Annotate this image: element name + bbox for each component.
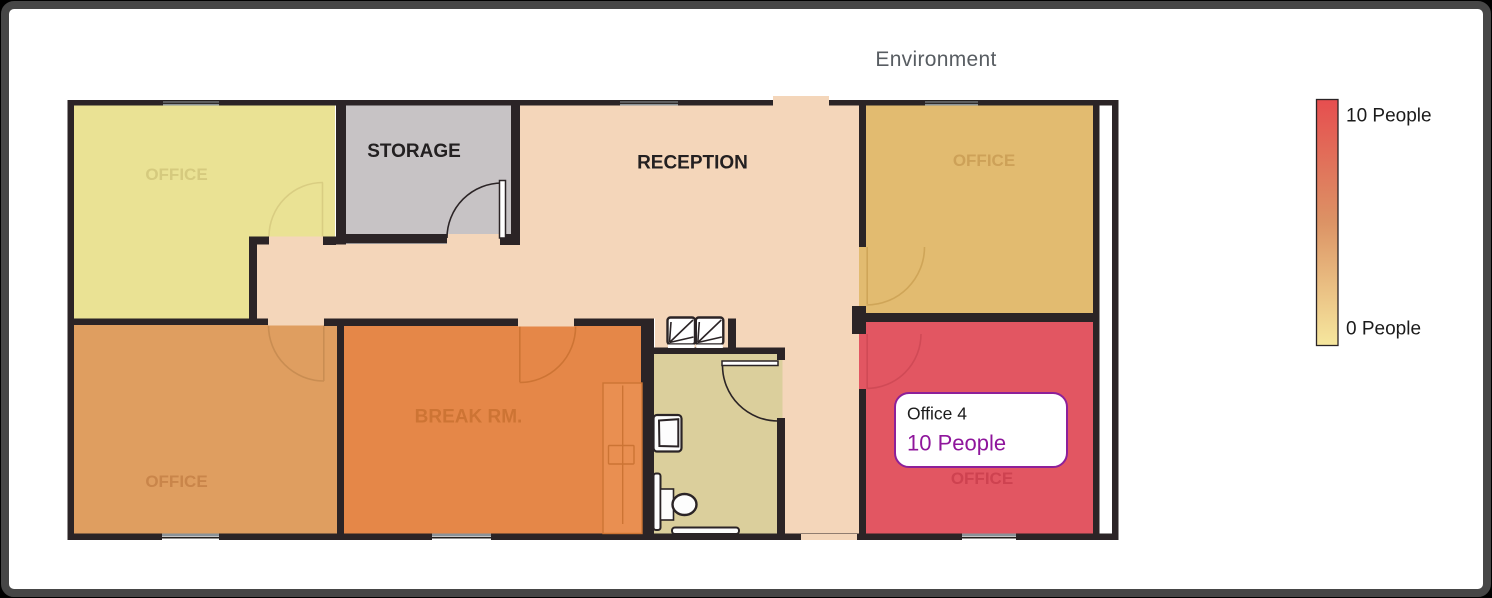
svg-text:OFFICE: OFFICE <box>951 469 1013 488</box>
svg-text:STORAGE: STORAGE <box>367 141 461 162</box>
svg-text:OFFICE: OFFICE <box>953 151 1015 170</box>
svg-text:10 People: 10 People <box>907 431 1006 456</box>
svg-text:OFFICE: OFFICE <box>145 165 207 184</box>
svg-text:0 People: 0 People <box>1346 319 1421 340</box>
svg-text:RECEPTION: RECEPTION <box>637 153 748 174</box>
svg-text:Environment: Environment <box>875 48 996 71</box>
svg-text:BREAK RM.: BREAK RM. <box>415 407 523 428</box>
svg-text:OFFICE: OFFICE <box>145 472 207 491</box>
svg-text:Office 4: Office 4 <box>907 404 967 424</box>
svg-text:10 People: 10 People <box>1346 106 1432 127</box>
